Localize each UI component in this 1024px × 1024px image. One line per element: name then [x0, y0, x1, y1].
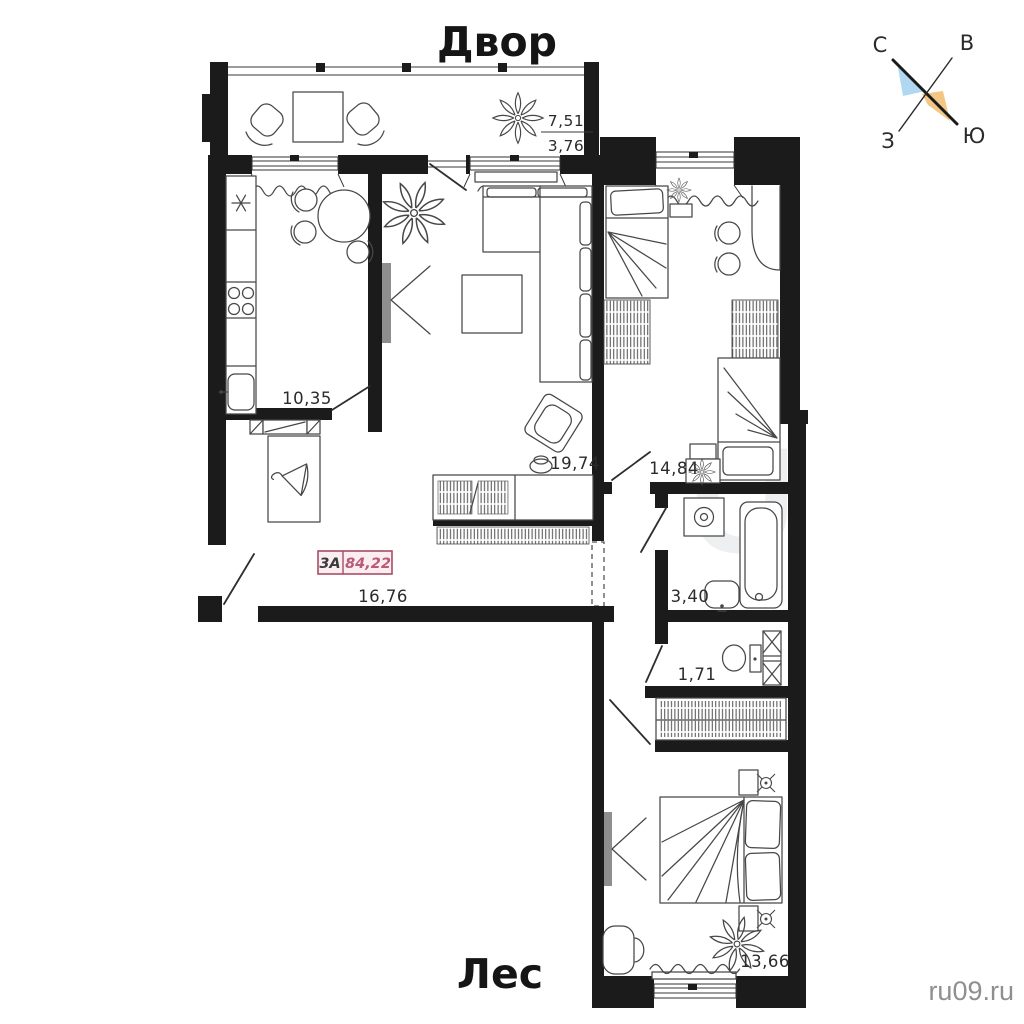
tv-panel [382, 263, 391, 343]
wardrobe-hall [268, 436, 320, 522]
area-child-bedroom: 14,84 [649, 459, 699, 478]
tv-view-lines [391, 266, 430, 334]
area-balcony-reduced: 3,76 [548, 137, 585, 155]
kitchen-chair [347, 241, 369, 263]
living-window [464, 155, 566, 187]
compass-south: Ю [963, 124, 986, 148]
wardrobe-niche [656, 698, 786, 740]
bookcase [604, 300, 650, 364]
floor-plan-page: U [0, 0, 1024, 1024]
child-room-door-leaf [612, 452, 650, 480]
child-desk [752, 186, 780, 270]
unit-badge: 3А 84,22 [318, 551, 392, 574]
child-bed-1 [606, 186, 668, 298]
console-cabinet [250, 420, 320, 434]
area-hallway: 16,76 [358, 587, 408, 606]
master-bedroom-window [652, 972, 736, 998]
living-room [372, 171, 593, 544]
compass-orange-pointer [922, 91, 950, 121]
wc [723, 631, 782, 685]
toilet-icon [723, 645, 762, 672]
area-bathroom: 3,40 [671, 587, 710, 606]
area-kitchen: 10,35 [282, 389, 332, 408]
entrance-door-leaf [224, 554, 254, 604]
washing-machine-icon [684, 498, 724, 536]
bookshelf [437, 527, 589, 544]
balcony [246, 92, 593, 145]
tv-panel [604, 812, 612, 886]
area-living: 19,74 [550, 454, 600, 473]
bath-sink-icon [705, 581, 739, 611]
desk [433, 475, 593, 520]
stool [718, 253, 740, 275]
compass-west: З [881, 129, 894, 153]
vase-icon [530, 456, 552, 473]
compass-east: В [960, 31, 974, 55]
orientation-label-bottom: Лес [457, 950, 543, 998]
stool [718, 222, 740, 244]
bookcase [732, 300, 778, 360]
desk-chair [523, 392, 585, 454]
unit-type: 3А [319, 556, 340, 572]
compass-icon: С В З Ю [873, 31, 986, 153]
area-master-bedroom: 13,66 [740, 952, 790, 971]
armchair [603, 926, 644, 974]
kitchen-counter [226, 176, 256, 414]
coffee-table [462, 275, 522, 333]
kitchen-chair [295, 189, 317, 211]
area-wc: 1,71 [678, 665, 717, 684]
double-bed [660, 797, 782, 903]
nightstand [670, 204, 692, 217]
site-watermark: ru09.ru [928, 976, 1014, 1006]
nightstand [739, 906, 758, 931]
kitchen-table [318, 190, 370, 242]
kitchen-door-leaf [332, 386, 370, 410]
tv-view-lines [612, 818, 646, 880]
wc-cabinet [763, 631, 781, 685]
balcony-table [293, 92, 343, 142]
balcony-door-living [428, 161, 466, 190]
compass-north: С [873, 33, 888, 57]
balcony-chair [247, 100, 286, 139]
wc-door-leaf [646, 646, 662, 682]
hallway [250, 420, 320, 522]
master-bedroom-door-leaf [610, 700, 650, 744]
unit-total-area: 84,22 [345, 556, 391, 572]
balcony-chair [343, 99, 382, 138]
floor-plan-drawing: U [0, 0, 1024, 1024]
kitchen-window [246, 155, 344, 187]
bathtub-icon [740, 502, 782, 608]
kitchen [219, 176, 373, 414]
kitchen-chair [294, 221, 316, 243]
child-bed-2 [718, 358, 780, 480]
bathroom-door-leaf [641, 508, 666, 552]
nightstand [739, 770, 758, 795]
bedroom-master [603, 770, 782, 978]
area-balcony-total: 7,51 [548, 112, 585, 130]
orientation-label-top: Двор [437, 18, 557, 66]
wall-opening-dashed [592, 542, 604, 606]
